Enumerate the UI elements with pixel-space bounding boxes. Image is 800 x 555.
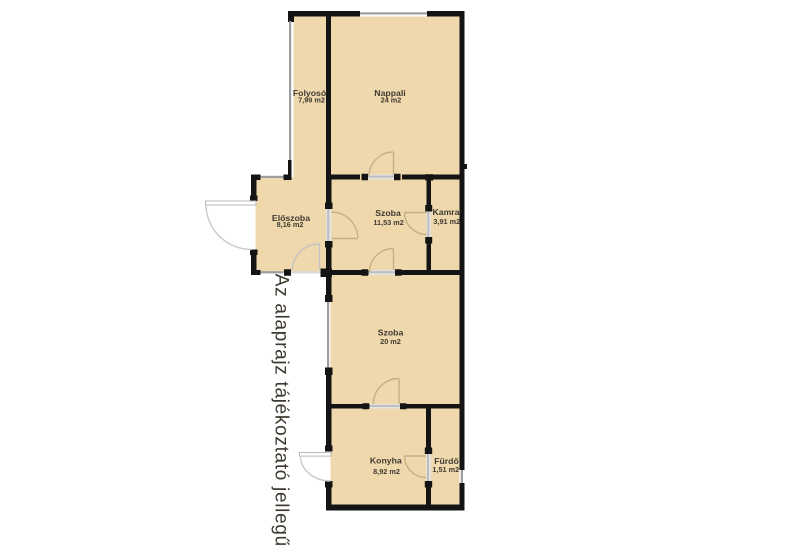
- svg-text:1,51 m2: 1,51 m2: [432, 465, 459, 474]
- svg-text:Konyha: Konyha: [370, 456, 402, 466]
- svg-text:20 m2: 20 m2: [380, 337, 401, 346]
- svg-text:3,91 m2: 3,91 m2: [433, 217, 460, 226]
- svg-text:Az alaprajz tájékoztató jelleg: Az alaprajz tájékoztató jellegű: [270, 274, 291, 547]
- svg-text:7,99 m2: 7,99 m2: [298, 96, 325, 105]
- svg-text:24 m2: 24 m2: [381, 96, 402, 105]
- svg-text:8,16 m2: 8,16 m2: [277, 220, 304, 229]
- svg-text:Szoba: Szoba: [378, 328, 404, 338]
- svg-text:8,92 m2: 8,92 m2: [373, 467, 400, 476]
- svg-text:11,53 m2: 11,53 m2: [373, 218, 403, 227]
- svg-text:Kamra: Kamra: [432, 207, 459, 217]
- svg-text:Szoba: Szoba: [375, 208, 401, 218]
